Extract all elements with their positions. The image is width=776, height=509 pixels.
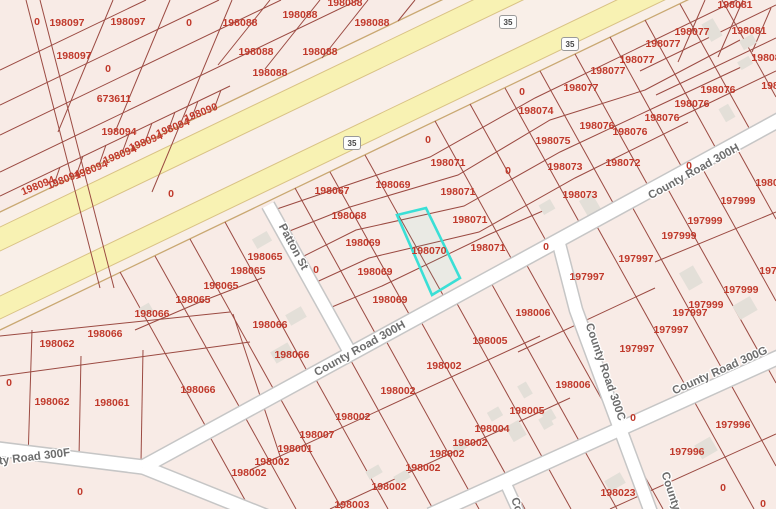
parcel-label[interactable]: 198097 — [56, 50, 91, 62]
parcel-label[interactable]: 0 — [425, 134, 431, 146]
parcel-label[interactable]: 198075 — [535, 135, 570, 147]
parcel-label[interactable]: 198061 — [94, 397, 129, 409]
parcel-label[interactable]: 0 — [720, 482, 726, 494]
parcel-label[interactable]: 198065 — [247, 251, 282, 263]
parcel-label[interactable]: 0 — [6, 377, 12, 389]
parcel-label[interactable]: 673611 — [97, 93, 132, 105]
parcel-label[interactable]: 198081 — [731, 25, 766, 37]
parcel-label[interactable]: 198094 — [101, 126, 136, 138]
parcel-label[interactable]: 198088 — [252, 67, 287, 79]
parcel-label[interactable]: 0 — [543, 241, 549, 253]
parcel-label[interactable]: 198088 — [327, 0, 362, 9]
parcel-label[interactable]: 0 — [186, 17, 192, 29]
parcel-label[interactable]: 198006 — [515, 307, 550, 319]
parcel-label[interactable]: 198088 — [354, 17, 389, 29]
parcel-label[interactable]: 198076 — [644, 112, 679, 124]
parcel-label[interactable]: 198007 — [299, 429, 334, 441]
parcel-label[interactable]: 198071 — [430, 157, 465, 169]
parcel-label[interactable]: 198069 — [357, 266, 392, 278]
parcel-label[interactable]: 198002 — [405, 462, 440, 474]
parcel-label[interactable]: 197997 — [569, 271, 604, 283]
parcel-label[interactable]: 198071 — [470, 242, 505, 254]
parcel-label[interactable]: 198066 — [274, 349, 309, 361]
parcel-label[interactable]: 198066 — [252, 319, 287, 331]
parcel-label[interactable]: 198081 — [717, 0, 752, 11]
parcel-label[interactable]: 198005 — [509, 405, 544, 417]
parcel-label[interactable]: 198067 — [314, 185, 349, 197]
parcel-label[interactable]: 0 — [34, 16, 40, 28]
parcel-label[interactable]: 198065 — [175, 294, 210, 306]
parcel-label[interactable]: 198097 — [49, 17, 84, 29]
parcel-label[interactable]: 198073 — [562, 189, 597, 201]
parcel-label[interactable]: 198002 — [335, 411, 370, 423]
parcel-label[interactable]: 198069 — [372, 294, 407, 306]
parcel-label[interactable]: 0 — [519, 86, 525, 98]
parcel-label[interactable]: 198088 — [222, 17, 257, 29]
parcel-label[interactable]: 0 — [168, 188, 174, 200]
parcel-label[interactable]: 197997 — [653, 324, 688, 336]
parcel-label[interactable]: 197996 — [669, 446, 704, 458]
parcel-label[interactable]: 198097 — [110, 16, 145, 28]
parcel-label[interactable]: 198077 — [674, 26, 709, 38]
parcel-label[interactable]: 198 — [761, 80, 776, 92]
parcel-label[interactable]: 198062 — [34, 396, 69, 408]
parcel-label[interactable]: 198002 — [371, 481, 406, 493]
parcel-label[interactable]: 198023 — [600, 487, 635, 499]
parcel-label[interactable]: 198071 — [440, 186, 475, 198]
parcel-label[interactable]: 198005 — [472, 335, 507, 347]
parcel-label[interactable]: 0 — [686, 160, 692, 172]
parcel-label[interactable]: 198076 — [579, 120, 614, 132]
parcel-label[interactable]: 198088 — [238, 46, 273, 58]
parcel-label[interactable]: 197996 — [715, 419, 750, 431]
parcel-label[interactable]: 198070 — [411, 245, 446, 257]
parcel-map[interactable]: 353535Patton StCounty Road 300HCounty Ro… — [0, 0, 776, 509]
parcel-label[interactable]: 198069 — [345, 237, 380, 249]
parcel-label[interactable]: 198073 — [547, 161, 582, 173]
parcel-label[interactable]: 198002 — [429, 448, 464, 460]
parcel-label[interactable]: 198066 — [180, 384, 215, 396]
parcel-label[interactable]: 197999 — [720, 195, 755, 207]
parcel-label[interactable]: 197 — [759, 265, 776, 277]
parcel-label[interactable]: 198071 — [452, 214, 487, 226]
parcel-label[interactable]: 0 — [630, 412, 636, 424]
parcel-label[interactable]: 198004 — [474, 423, 509, 435]
parcel-label[interactable]: 197999 — [661, 230, 696, 242]
map-viewport[interactable]: 353535Patton StCounty Road 300HCounty Ro… — [0, 0, 776, 509]
parcel-label[interactable]: 197999 — [687, 215, 722, 227]
parcel-label[interactable]: 0 — [313, 264, 319, 276]
parcel-label[interactable]: 0 — [105, 63, 111, 75]
parcel-label[interactable]: 0 — [760, 498, 766, 509]
highway-shield-number: 35 — [348, 139, 357, 148]
parcel-label[interactable]: 198076 — [674, 98, 709, 110]
parcel-label[interactable]: 198002 — [231, 467, 266, 479]
parcel-label[interactable]: 198068 — [331, 210, 366, 222]
parcel-label[interactable]: 198088 — [282, 9, 317, 21]
parcel-label[interactable]: 19808 — [751, 52, 776, 64]
parcel-label[interactable]: 198066 — [87, 328, 122, 340]
highway-shield-number: 35 — [504, 18, 513, 27]
parcel-label[interactable]: 198062 — [39, 338, 74, 350]
parcel-label[interactable]: 0 — [77, 486, 83, 498]
parcel-label[interactable]: 1980 — [755, 177, 776, 189]
parcel-label[interactable]: 198077 — [645, 38, 680, 50]
parcel-label[interactable]: 198006 — [555, 379, 590, 391]
highway-shield-number: 35 — [566, 40, 575, 49]
parcel-label[interactable]: 198077 — [563, 82, 598, 94]
parcel-label[interactable]: 198076 — [612, 126, 647, 138]
parcel-label[interactable]: 197997 — [672, 307, 707, 319]
parcel-label[interactable]: 198002 — [380, 385, 415, 397]
parcel-label[interactable]: 198065 — [230, 265, 265, 277]
parcel-label[interactable]: 198066 — [134, 308, 169, 320]
parcel-label[interactable]: 197997 — [618, 253, 653, 265]
parcel-label[interactable]: 198074 — [518, 105, 553, 117]
parcel-label[interactable]: 198088 — [302, 46, 337, 58]
parcel-label[interactable]: 197997 — [619, 343, 654, 355]
parcel-label[interactable]: 197999 — [723, 284, 758, 296]
parcel-label[interactable]: 198003 — [334, 499, 369, 509]
parcel-label[interactable]: 198001 — [277, 443, 312, 455]
parcel-label[interactable]: 198076 — [700, 84, 735, 96]
parcel-label[interactable]: 198069 — [375, 179, 410, 191]
parcel-label[interactable]: 198002 — [426, 360, 461, 372]
parcel-label[interactable]: 198077 — [590, 65, 625, 77]
parcel-label[interactable]: 198065 — [203, 280, 238, 292]
parcel-label[interactable]: 0 — [505, 165, 511, 177]
parcel-label[interactable]: 198072 — [605, 157, 640, 169]
